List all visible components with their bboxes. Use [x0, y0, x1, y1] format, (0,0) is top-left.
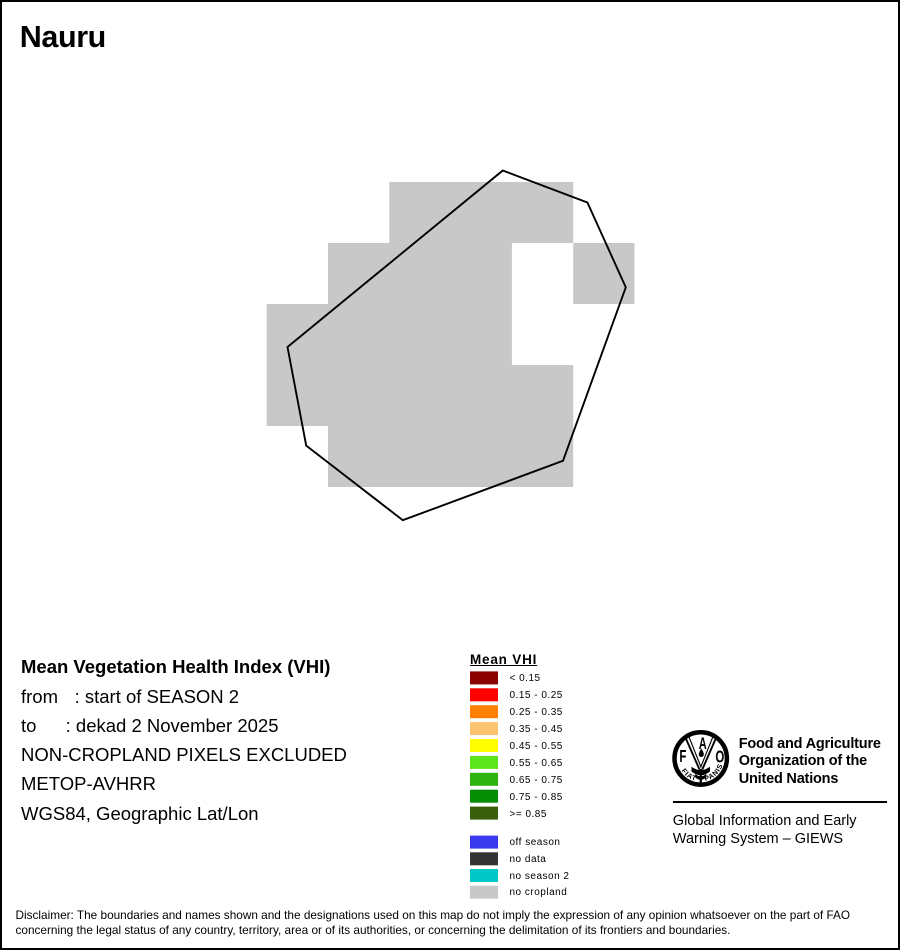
svg-text:F: F [679, 748, 686, 767]
svg-text:A: A [699, 734, 707, 753]
